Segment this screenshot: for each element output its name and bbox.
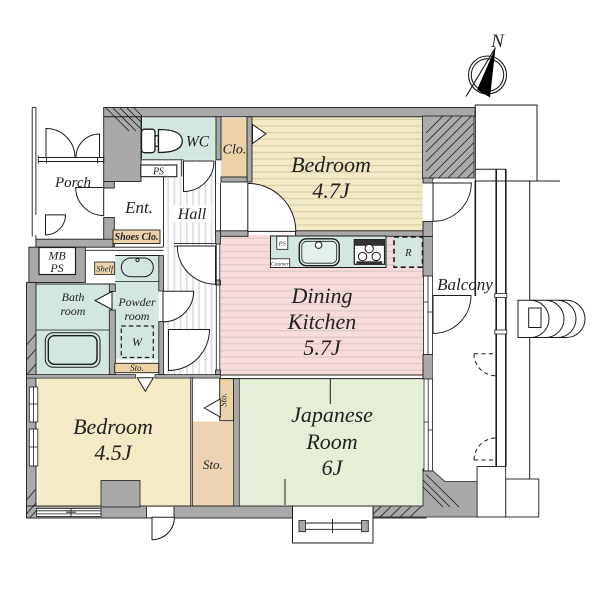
svg-text:Counter: Counter [271, 262, 290, 268]
svg-text:4.7J: 4.7J [312, 178, 351, 203]
svg-text:Porch: Porch [54, 175, 91, 191]
svg-text:Dining: Dining [290, 283, 352, 308]
svg-text:R: R [404, 248, 412, 259]
svg-text:W: W [132, 335, 143, 349]
svg-text:4.5J: 4.5J [94, 440, 133, 465]
svg-text:Kitchen: Kitchen [287, 309, 356, 334]
svg-text:WC: WC [186, 134, 210, 151]
svg-text:Clo.: Clo. [223, 143, 247, 158]
svg-text:Powder: Powder [117, 295, 156, 309]
svg-text:Bedroom: Bedroom [73, 414, 153, 439]
svg-text:Shoes Clo.: Shoes Clo. [115, 232, 159, 243]
svg-text:Japanese: Japanese [291, 402, 373, 427]
svg-text:Bedroom: Bedroom [291, 152, 371, 177]
svg-text:Hall: Hall [177, 206, 207, 223]
svg-text:Balcony: Balcony [437, 275, 493, 294]
svg-text:PS: PS [49, 261, 63, 275]
svg-text:Ent.: Ent. [124, 198, 153, 217]
svg-text:room: room [125, 309, 150, 323]
svg-text:Bath: Bath [62, 290, 85, 304]
svg-text:Sto.: Sto. [219, 393, 229, 407]
svg-text:N: N [490, 31, 505, 52]
svg-text:5.7J: 5.7J [303, 335, 342, 360]
svg-text:room: room [61, 304, 86, 318]
svg-text:PS: PS [152, 167, 164, 178]
svg-text:6J: 6J [322, 455, 344, 480]
svg-text:Sto.: Sto. [203, 457, 223, 472]
svg-text:PS: PS [278, 241, 287, 248]
svg-text:Shelf: Shelf [96, 264, 115, 274]
svg-text:Sto.: Sto. [130, 363, 144, 373]
svg-text:Room: Room [305, 429, 357, 454]
